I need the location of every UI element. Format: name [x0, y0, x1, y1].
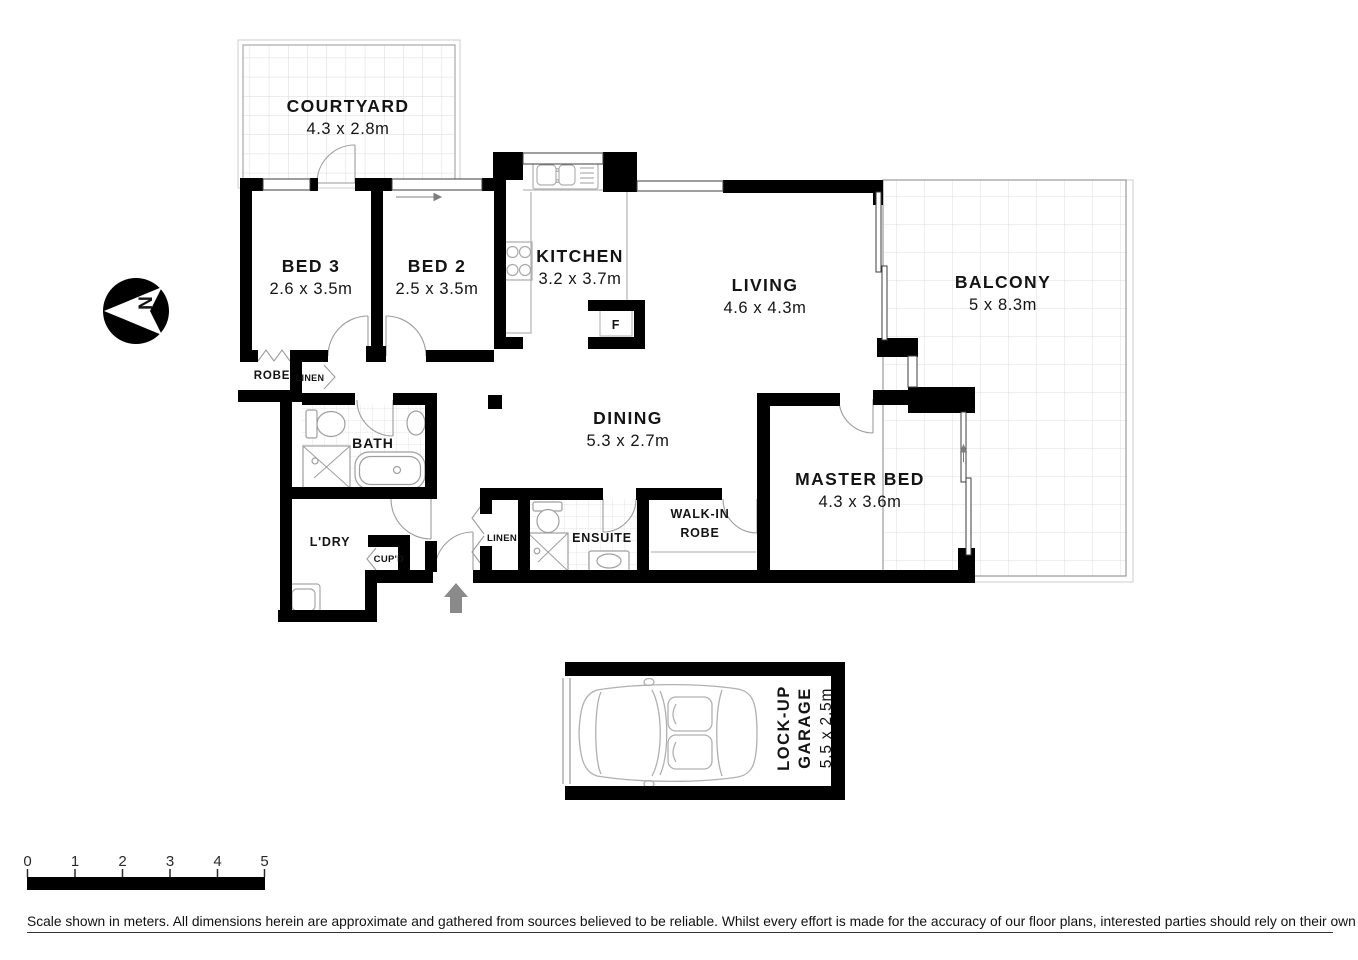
car-icon — [579, 679, 757, 788]
master-balcony-slider-b — [966, 478, 971, 555]
scale-tick-2: 2 — [118, 853, 126, 870]
scale-tick-0: 0 — [23, 853, 31, 870]
bath-label: BATH — [352, 435, 394, 451]
bed2-dims: 2.5 x 3.5m — [395, 280, 478, 298]
disclaimer-text: Scale shown in meters. All dimensions he… — [27, 914, 1333, 933]
master-bed-label: MASTER BED — [795, 469, 925, 489]
master-bed-dims: 4.3 x 3.6m — [818, 493, 901, 511]
living-label: LIVING — [732, 275, 799, 295]
living-master-slider — [908, 356, 917, 387]
bed2-label: BED 2 — [408, 256, 467, 276]
cooktop-icon — [505, 242, 532, 280]
bathtub-icon — [355, 452, 425, 489]
bed2-window — [392, 179, 482, 190]
dining-label: DINING — [593, 408, 663, 428]
cupboard-label: CUP'D — [374, 554, 405, 565]
bed3-window — [263, 179, 310, 190]
north-arrow-icon: N — [103, 278, 169, 344]
living-dims: 4.6 x 4.3m — [723, 299, 806, 317]
courtyard-dims: 4.3 x 2.8m — [306, 120, 389, 138]
floor-plan-svg: N 0 1 2 3 4 5 COURTYARD 4.3 x 2.8m BED 3… — [0, 0, 1358, 960]
garage-label-2: GARAGE — [796, 687, 814, 768]
ensuite-basin-icon — [589, 551, 629, 571]
shower-icon — [303, 446, 350, 488]
laundry-door — [391, 499, 431, 539]
garage-door-line — [563, 678, 570, 784]
bed3-door — [328, 316, 368, 356]
balcony-dims: 5 x 8.3m — [969, 296, 1037, 314]
garage-dims: 5.5 x 2.5m — [818, 688, 835, 768]
scale-tick-5: 5 — [260, 853, 268, 870]
fridge-label: F — [612, 318, 620, 332]
entry-arrow-icon — [444, 583, 468, 613]
robe-label: ROBE — [254, 370, 290, 382]
walk-in-label-1: WALK-IN — [670, 507, 729, 521]
laundry-label: L'DRY — [310, 535, 351, 549]
living-balcony-slider-a — [876, 192, 881, 272]
ensuite-label: ENSUITE — [572, 531, 632, 545]
garage-labels: LOCK-UP GARAGE 5.5 x 2.5m — [775, 685, 835, 771]
bed3-label: BED 3 — [282, 256, 341, 276]
compass-north-label: N — [136, 296, 157, 310]
walk-in-label-2: ROBE — [680, 526, 719, 540]
bed2-door — [386, 316, 426, 356]
linen-entry-label: LINEN — [487, 533, 517, 544]
master-bed-door — [839, 399, 873, 433]
front-door — [435, 532, 473, 570]
dining-dims: 5.3 x 2.7m — [586, 432, 669, 450]
balcony-label: BALCONY — [955, 272, 1051, 292]
scale-bar: 0 1 2 3 4 5 — [23, 853, 268, 890]
bed3-dims: 2.6 x 3.5m — [269, 280, 352, 298]
scale-tick-3: 3 — [166, 853, 174, 870]
robe-bifold — [258, 350, 290, 361]
dining-column — [488, 395, 502, 409]
garage-label-1: LOCK-UP — [775, 685, 793, 771]
kitchen-label: KITCHEN — [536, 246, 624, 266]
kitchen-dims: 3.2 x 3.7m — [538, 270, 621, 288]
toilet-icon — [306, 410, 345, 438]
ensuite-shower-icon — [528, 533, 568, 571]
living-balcony-slider-b — [882, 266, 887, 340]
scale-tick-4: 4 — [213, 853, 221, 870]
linen-hall-bifold — [324, 365, 335, 389]
balcony-area — [883, 180, 1133, 582]
linen-hall-label: LINEN — [296, 373, 325, 383]
living-window — [637, 181, 723, 191]
basin-icon — [407, 411, 425, 435]
scale-tick-1: 1 — [71, 853, 79, 870]
kitchen-window — [523, 153, 603, 164]
kitchen-sink-icon — [533, 161, 598, 189]
floor-plan-page: N 0 1 2 3 4 5 COURTYARD 4.3 x 2.8m BED 3… — [0, 0, 1358, 960]
courtyard-label: COURTYARD — [287, 96, 410, 116]
